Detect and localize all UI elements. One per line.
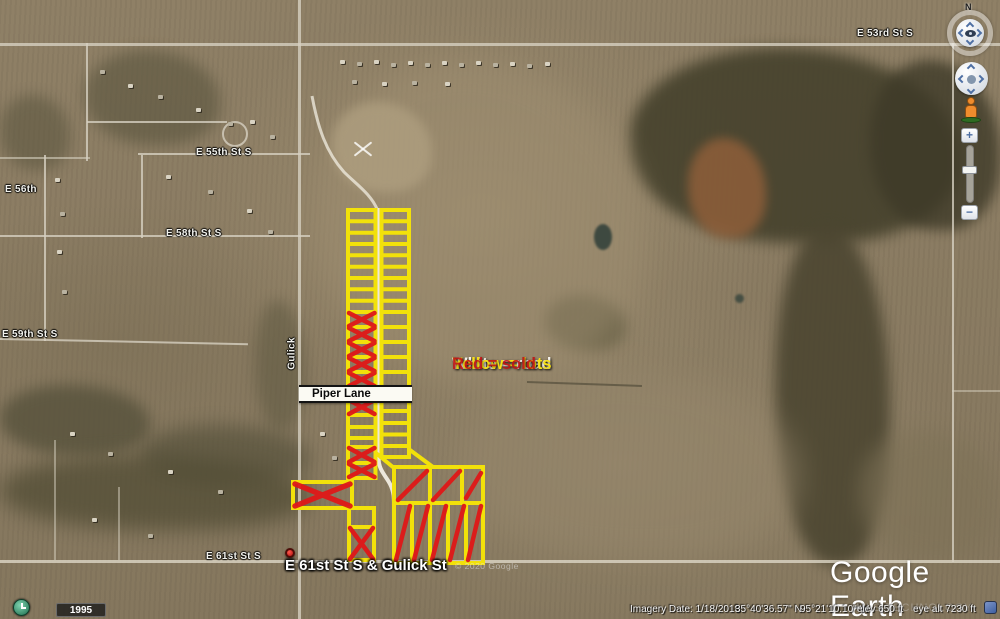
pegman-icon[interactable] [967,97,975,105]
house-dot [476,61,481,65]
house-dot [250,120,255,124]
street-label-e56: E 56th [5,184,37,195]
house-dot [332,456,337,460]
zoom-slider-handle[interactable] [962,166,977,174]
house-dot [391,63,396,67]
zoom-slider-track[interactable] [966,145,974,203]
house-dot [100,70,105,74]
placemark-label: E 61st St S & Gulick St [285,557,447,574]
house-dot [270,135,275,139]
house-dot [493,63,498,67]
house-dot [208,190,213,194]
house-dot [408,61,413,65]
street-label-e61: E 61st St S [206,551,261,562]
house-dot [92,518,97,522]
house-dot [196,108,201,112]
imagery-date: Imagery Date: 1/18/2018 [630,604,740,615]
house-dot [442,61,447,65]
legend-sold: Red = sold [452,352,536,376]
house-dot [128,84,133,88]
history-year-badge[interactable]: 1995 [56,603,106,617]
mls-watermark: MLS TECHNOLOGY [856,602,973,614]
house-dot [55,178,60,182]
house-dot [412,81,417,85]
latitude-readout: 35°40'36.57" N [735,604,802,615]
house-dot [247,209,252,213]
house-dot [108,452,113,456]
street-label-gulick: Gulick [287,324,298,384]
piper-lane-label: Piper Lane [299,387,371,401]
house-dot [459,63,464,67]
house-dot [340,60,345,64]
house-dot [357,62,362,66]
map-viewport[interactable] [0,0,1000,619]
house-dot [158,95,163,99]
house-dot [445,82,450,86]
house-dot [374,60,379,64]
house-dot [425,63,430,67]
house-dot [352,80,357,84]
house-dot [527,64,532,68]
house-dot [60,212,65,216]
house-dot [268,230,273,234]
house-dot [148,534,153,538]
house-dot [70,432,75,436]
eye-icon [965,30,976,37]
street-label-e59: E 59th St S [2,329,58,340]
pegman-base [961,117,981,123]
house-dot [382,82,387,86]
house-dot [62,290,67,294]
north-indicator[interactable]: N [965,2,972,12]
house-dot [320,432,325,436]
zoom-out-button[interactable]: − [961,205,978,220]
status-icon [984,601,997,614]
house-dot [228,122,233,126]
house-dot [57,250,62,254]
house-dot [168,470,173,474]
house-dot [510,62,515,66]
move-center-icon [967,75,976,84]
house-dot [218,490,223,494]
zoom-in-button[interactable]: + [961,128,978,143]
google-earth-window: Piper Lane E 53rd St S E 55th St S E 56t… [0,0,1000,619]
house-dot [545,62,550,66]
street-label-e55: E 55th St S [196,147,252,158]
street-label-e53: E 53rd St S [857,28,913,39]
street-label-e58: E 58th St S [166,228,222,239]
piper-lane-road-band: Piper Lane [299,385,412,403]
history-clock-icon[interactable] [13,599,30,616]
house-dot [166,175,171,179]
houses-layer [0,0,1000,619]
copyright-text: © 2020 Google [455,561,519,571]
